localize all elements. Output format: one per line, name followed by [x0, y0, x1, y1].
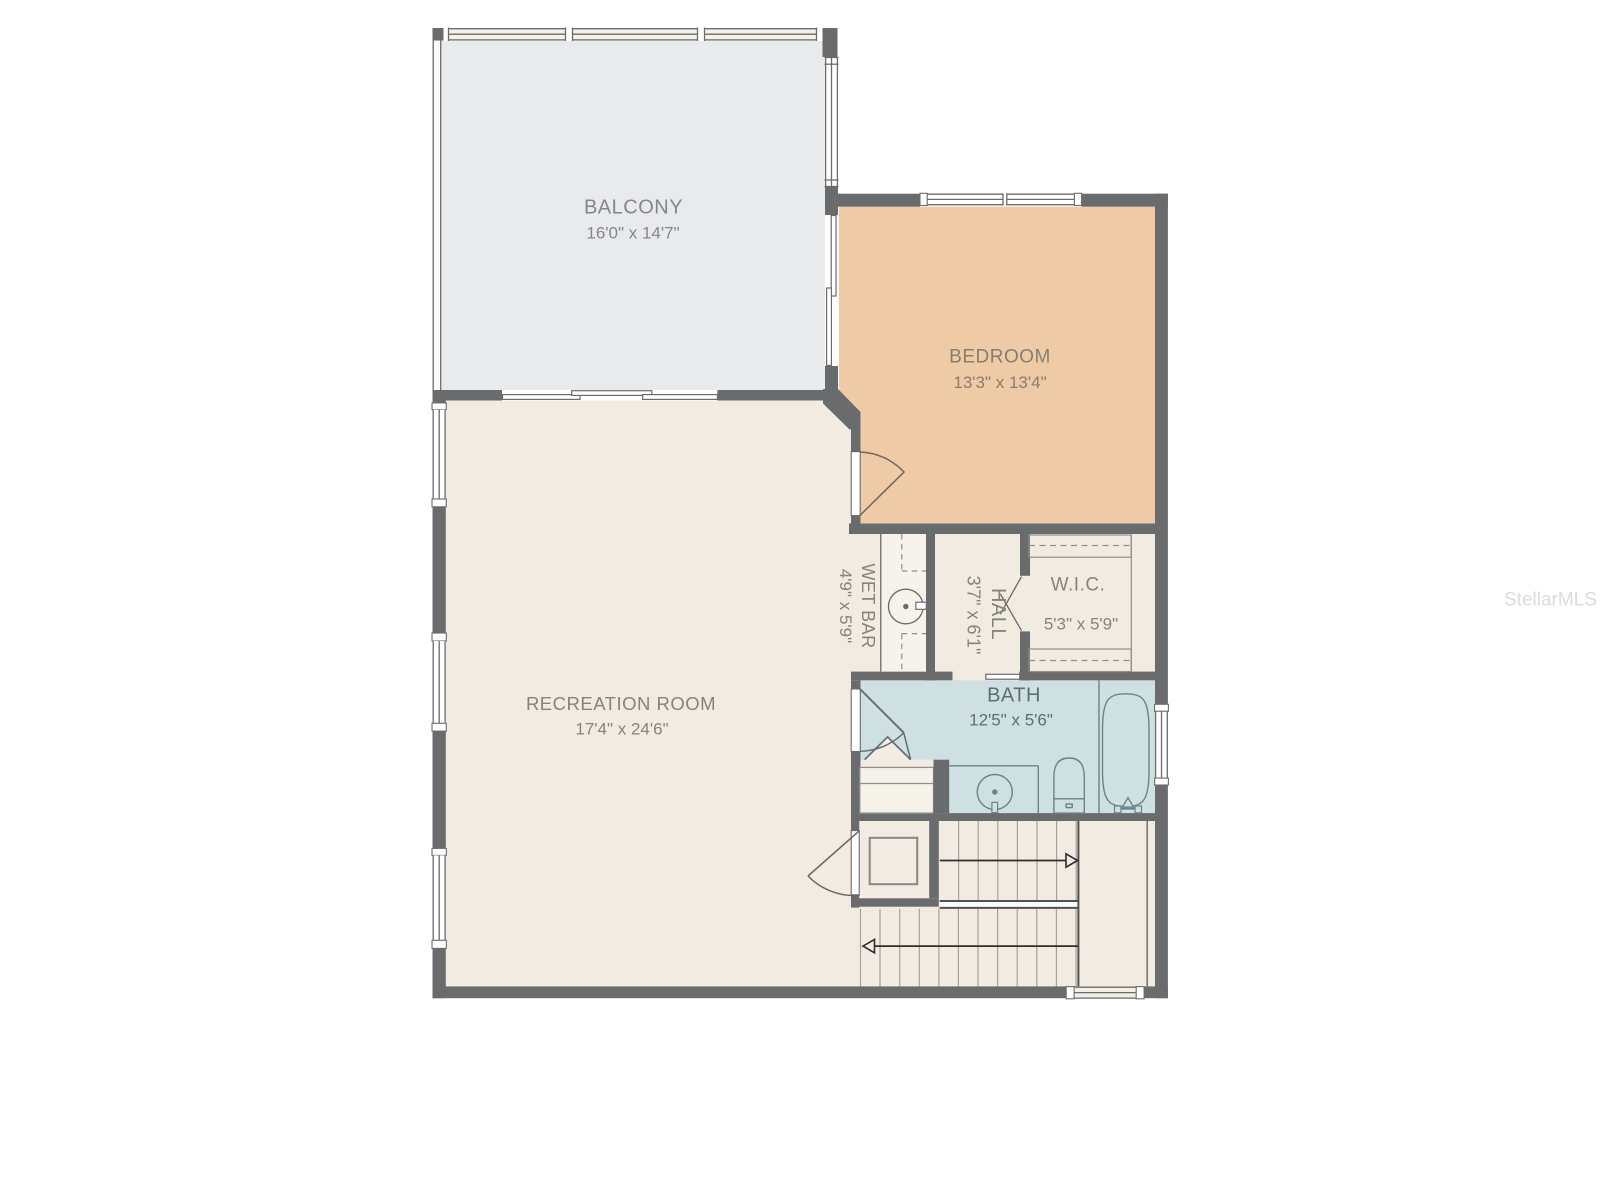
- svg-text:4'9" x 5'9": 4'9" x 5'9": [836, 569, 855, 643]
- svg-text:16'0" x 14'7": 16'0" x 14'7": [586, 224, 679, 243]
- svg-text:3'7" x 6'1": 3'7" x 6'1": [964, 576, 984, 655]
- svg-text:HALL: HALL: [987, 588, 1009, 640]
- svg-text:W.I.C.: W.I.C.: [1051, 575, 1106, 596]
- svg-text:WET BAR: WET BAR: [858, 563, 878, 648]
- svg-text:12'5" x 5'6": 12'5" x 5'6": [969, 711, 1053, 730]
- svg-text:BATH: BATH: [987, 685, 1041, 707]
- svg-text:17'4" x 24'6": 17'4" x 24'6": [575, 720, 668, 739]
- svg-text:BALCONY: BALCONY: [584, 197, 683, 219]
- svg-text:BEDROOM: BEDROOM: [949, 347, 1051, 368]
- svg-text:RECREATION ROOM: RECREATION ROOM: [526, 693, 716, 714]
- svg-text:13'3" x 13'4": 13'3" x 13'4": [953, 373, 1046, 392]
- svg-text:5'3" x 5'9": 5'3" x 5'9": [1044, 615, 1118, 634]
- svg-text:StellarMLS: StellarMLS: [1504, 590, 1597, 611]
